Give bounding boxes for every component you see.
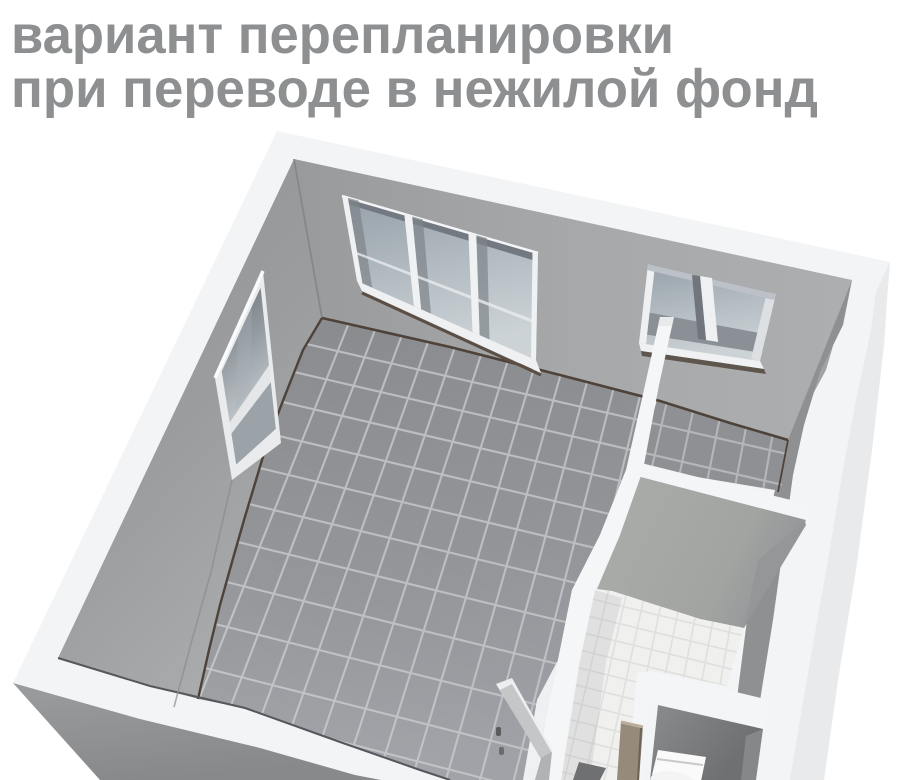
svg-text:при переводе в нежилой фонд: при переводе в нежилой фонд — [11, 59, 818, 119]
svg-text:вариант перепланировки: вариант перепланировки — [11, 5, 674, 65]
